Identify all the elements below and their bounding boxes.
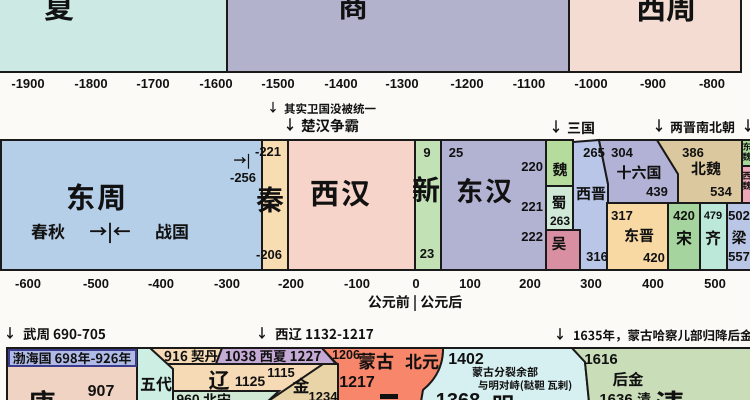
svg-text:263: 263 <box>550 214 570 228</box>
svg-text:907: 907 <box>88 383 115 400</box>
svg-text:23: 23 <box>420 246 434 261</box>
svg-text:-300: -300 <box>214 276 240 291</box>
svg-text:1368: 1368 <box>436 390 481 400</box>
svg-text:420: 420 <box>673 208 695 223</box>
svg-text:-1400: -1400 <box>324 76 357 91</box>
svg-text:-256: -256 <box>230 170 256 185</box>
svg-text:-1200: -1200 <box>450 76 483 91</box>
svg-text:222: 222 <box>521 229 543 244</box>
svg-text:1217: 1217 <box>339 374 375 391</box>
svg-text:400: 400 <box>642 276 664 291</box>
svg-text:317: 317 <box>611 208 633 223</box>
svg-text:386: 386 <box>682 145 704 160</box>
svg-text:960: 960 <box>176 391 200 400</box>
svg-text:479: 479 <box>704 210 722 222</box>
svg-text:439: 439 <box>646 184 668 199</box>
svg-text:420: 420 <box>643 250 665 265</box>
svg-text:300: 300 <box>580 276 602 291</box>
svg-text:1636: 1636 <box>599 391 632 400</box>
svg-text:304: 304 <box>611 145 633 160</box>
svg-text:-800: -800 <box>699 76 725 91</box>
svg-text:1115: 1115 <box>267 365 295 380</box>
svg-text:9: 9 <box>423 145 430 160</box>
svg-text:-1300: -1300 <box>385 76 418 91</box>
svg-text:-1900: -1900 <box>11 76 44 91</box>
svg-text:-1600: -1600 <box>199 76 232 91</box>
svg-text:-100: -100 <box>344 276 370 291</box>
svg-text:25: 25 <box>449 145 463 160</box>
svg-text:500: 500 <box>704 276 726 291</box>
svg-text:-221: -221 <box>255 144 281 159</box>
svg-text:-900: -900 <box>640 76 666 91</box>
svg-text:-500: -500 <box>83 276 109 291</box>
svg-text:1402: 1402 <box>448 351 484 368</box>
svg-text:-206: -206 <box>256 247 282 262</box>
svg-text:-1100: -1100 <box>513 76 546 91</box>
svg-text:1206: 1206 <box>332 348 360 362</box>
svg-text:557: 557 <box>728 249 750 264</box>
svg-text:220: 220 <box>521 159 543 174</box>
svg-text:1234: 1234 <box>309 389 339 400</box>
svg-text:502: 502 <box>728 208 750 223</box>
svg-text:-1000: -1000 <box>574 76 607 91</box>
svg-text:-1500: -1500 <box>261 76 294 91</box>
svg-text:316: 316 <box>586 249 608 264</box>
svg-text:-1800: -1800 <box>74 76 107 91</box>
svg-text:-600: -600 <box>15 276 41 291</box>
svg-text:100: 100 <box>459 276 481 291</box>
svg-text:1616: 1616 <box>584 351 617 368</box>
svg-text:1125: 1125 <box>235 373 266 389</box>
svg-text:-200: -200 <box>278 276 304 291</box>
svg-text:0: 0 <box>412 276 419 291</box>
svg-text:265: 265 <box>583 145 605 160</box>
svg-text:-400: -400 <box>148 276 174 291</box>
svg-text:534: 534 <box>710 184 732 199</box>
svg-text:-1700: -1700 <box>136 76 169 91</box>
svg-text:200: 200 <box>519 276 541 291</box>
svg-text:221: 221 <box>521 199 543 214</box>
